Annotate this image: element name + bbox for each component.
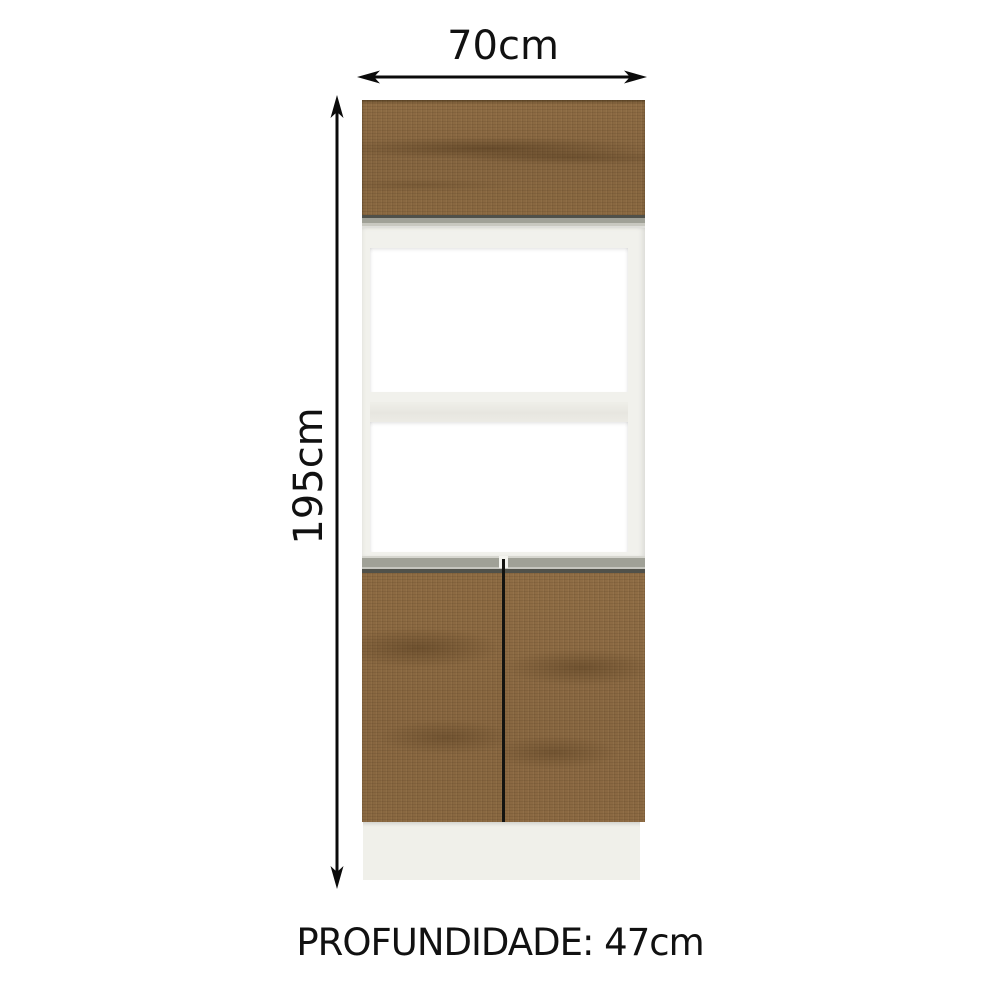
cabinet-illustration bbox=[362, 100, 645, 880]
width-dimension-label: 70cm bbox=[361, 26, 645, 66]
lower-right-door-panel bbox=[504, 573, 645, 822]
width-dimension-arrow bbox=[356, 69, 648, 85]
lower-open-niche bbox=[370, 422, 628, 552]
middle-shelf bbox=[370, 402, 628, 422]
upper-door-panel bbox=[362, 100, 645, 215]
product-dimension-diagram: 70cm 195cm 40cm 33cm P bbox=[0, 0, 1000, 1000]
door-divider-line bbox=[502, 559, 505, 822]
depth-caption: PROFUNDIDADE: 47cm bbox=[0, 921, 1000, 964]
height-dimension-arrow bbox=[329, 94, 345, 890]
base-plinth bbox=[363, 822, 640, 880]
lower-left-door-panel bbox=[362, 573, 503, 822]
upper-open-niche bbox=[370, 248, 628, 392]
upper-door-handle bbox=[362, 215, 645, 228]
height-dimension-label: 195cm bbox=[289, 407, 329, 544]
